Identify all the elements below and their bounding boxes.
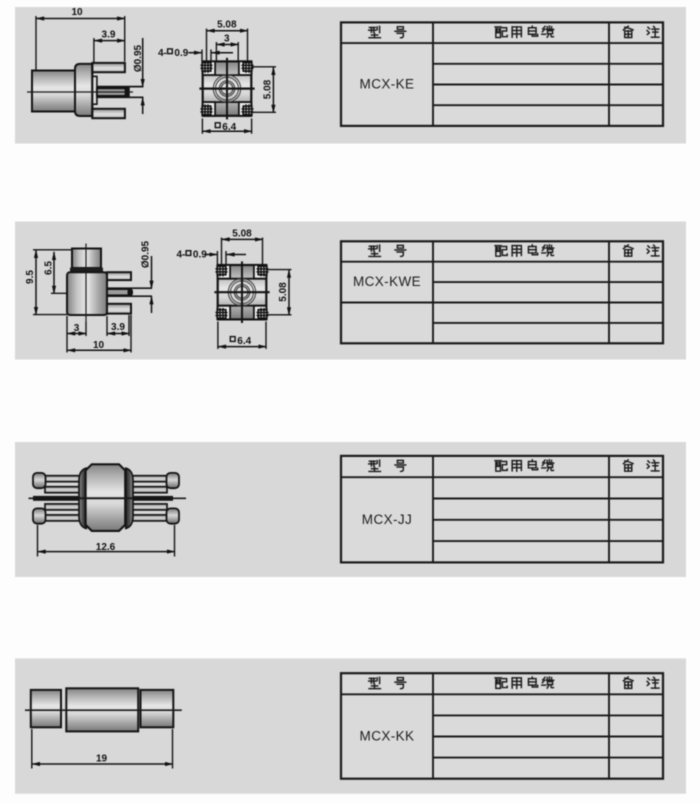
svg-text:Ø0.95: Ø0.95 xyxy=(133,44,144,72)
svg-text:MCX-KK: MCX-KK xyxy=(360,729,415,744)
svg-text:12.6: 12.6 xyxy=(96,542,116,553)
svg-text:10: 10 xyxy=(93,340,105,351)
svg-text:3: 3 xyxy=(224,34,230,45)
svg-text:6.5: 6.5 xyxy=(43,261,54,275)
svg-text:3.9: 3.9 xyxy=(102,30,116,41)
svg-text:Ø0.95: Ø0.95 xyxy=(141,240,152,268)
svg-text:MCX-KWE: MCX-KWE xyxy=(353,274,421,289)
svg-text:MCX-KE: MCX-KE xyxy=(360,77,415,92)
svg-text:5.08: 5.08 xyxy=(262,79,273,99)
svg-text:5.08: 5.08 xyxy=(278,282,289,302)
svg-text:5.08: 5.08 xyxy=(217,20,237,31)
svg-text:MCX-JJ: MCX-JJ xyxy=(362,512,412,527)
svg-text:10: 10 xyxy=(71,7,83,18)
svg-text:4-: 4- xyxy=(177,250,186,261)
svg-text:0.9: 0.9 xyxy=(174,48,188,59)
svg-text:9.5: 9.5 xyxy=(25,270,36,284)
svg-text:6.4: 6.4 xyxy=(222,122,236,133)
svg-text:19: 19 xyxy=(96,753,108,764)
svg-text:4-: 4- xyxy=(158,48,167,59)
svg-text:5.08: 5.08 xyxy=(232,228,252,239)
svg-text:3.9: 3.9 xyxy=(111,322,125,333)
svg-text:3: 3 xyxy=(74,323,80,334)
svg-text:6.4: 6.4 xyxy=(237,336,251,347)
